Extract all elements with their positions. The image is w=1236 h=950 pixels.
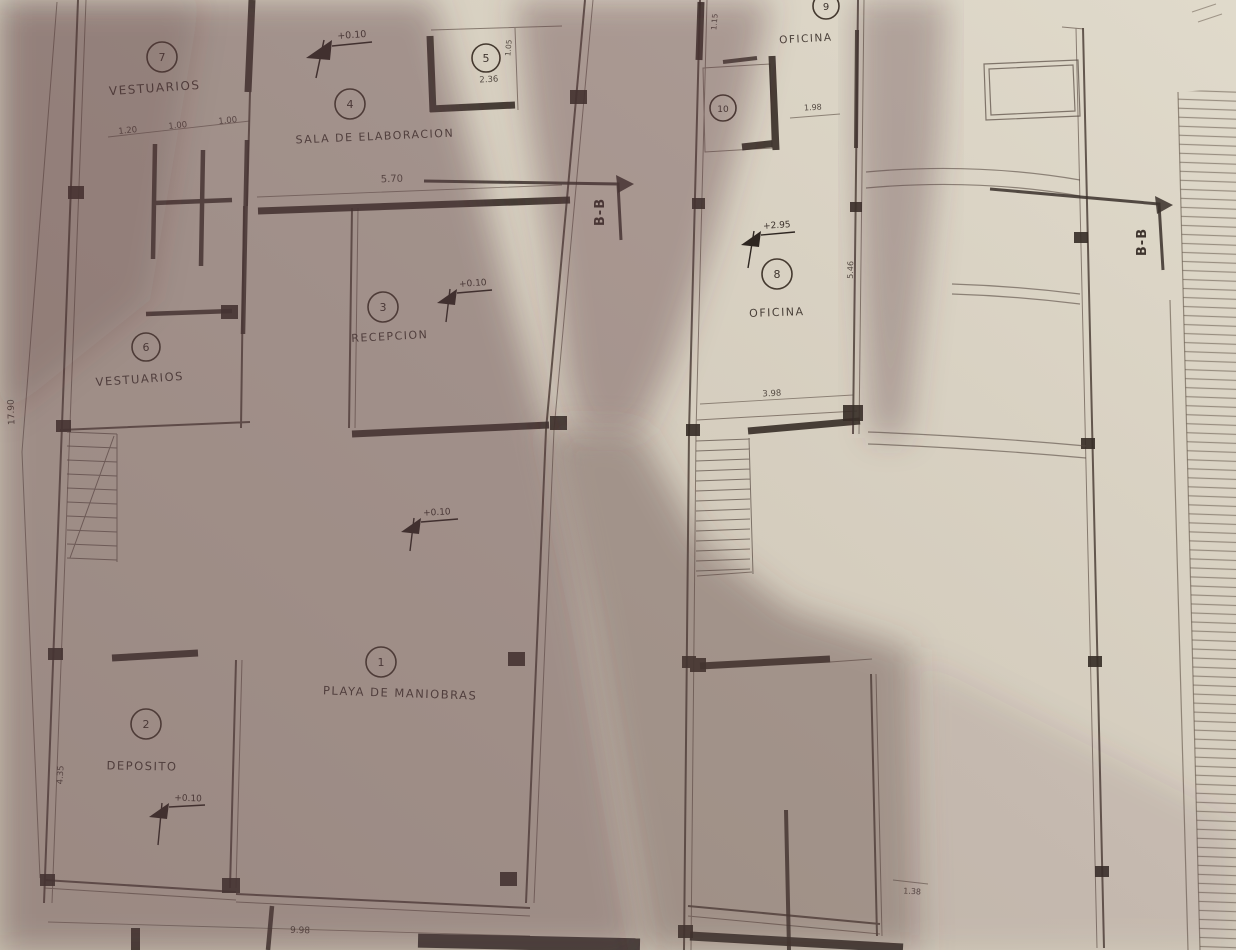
photo-canvas: 7 4 5 3 6 1 2 VESTUARIOS SALA DE ELABORA… xyxy=(0,0,1236,950)
room-number: 9 xyxy=(823,2,829,13)
room-number: 8 xyxy=(774,268,781,281)
blueprint-photo: 7 4 5 3 6 1 2 VESTUARIOS SALA DE ELABORA… xyxy=(0,0,1236,950)
section-label: B-B xyxy=(1135,228,1150,256)
room-number: 5 xyxy=(483,52,490,65)
dimension-text: 2.36 xyxy=(479,75,498,86)
level-text: +2.95 xyxy=(763,220,791,232)
dimension-text: 1.05 xyxy=(503,39,513,57)
dimension-text: 5.46 xyxy=(846,261,856,279)
room-label: OFICINA xyxy=(749,305,805,320)
dimension-text: 1.98 xyxy=(804,103,822,113)
dimension-text: 3.98 xyxy=(762,389,781,400)
